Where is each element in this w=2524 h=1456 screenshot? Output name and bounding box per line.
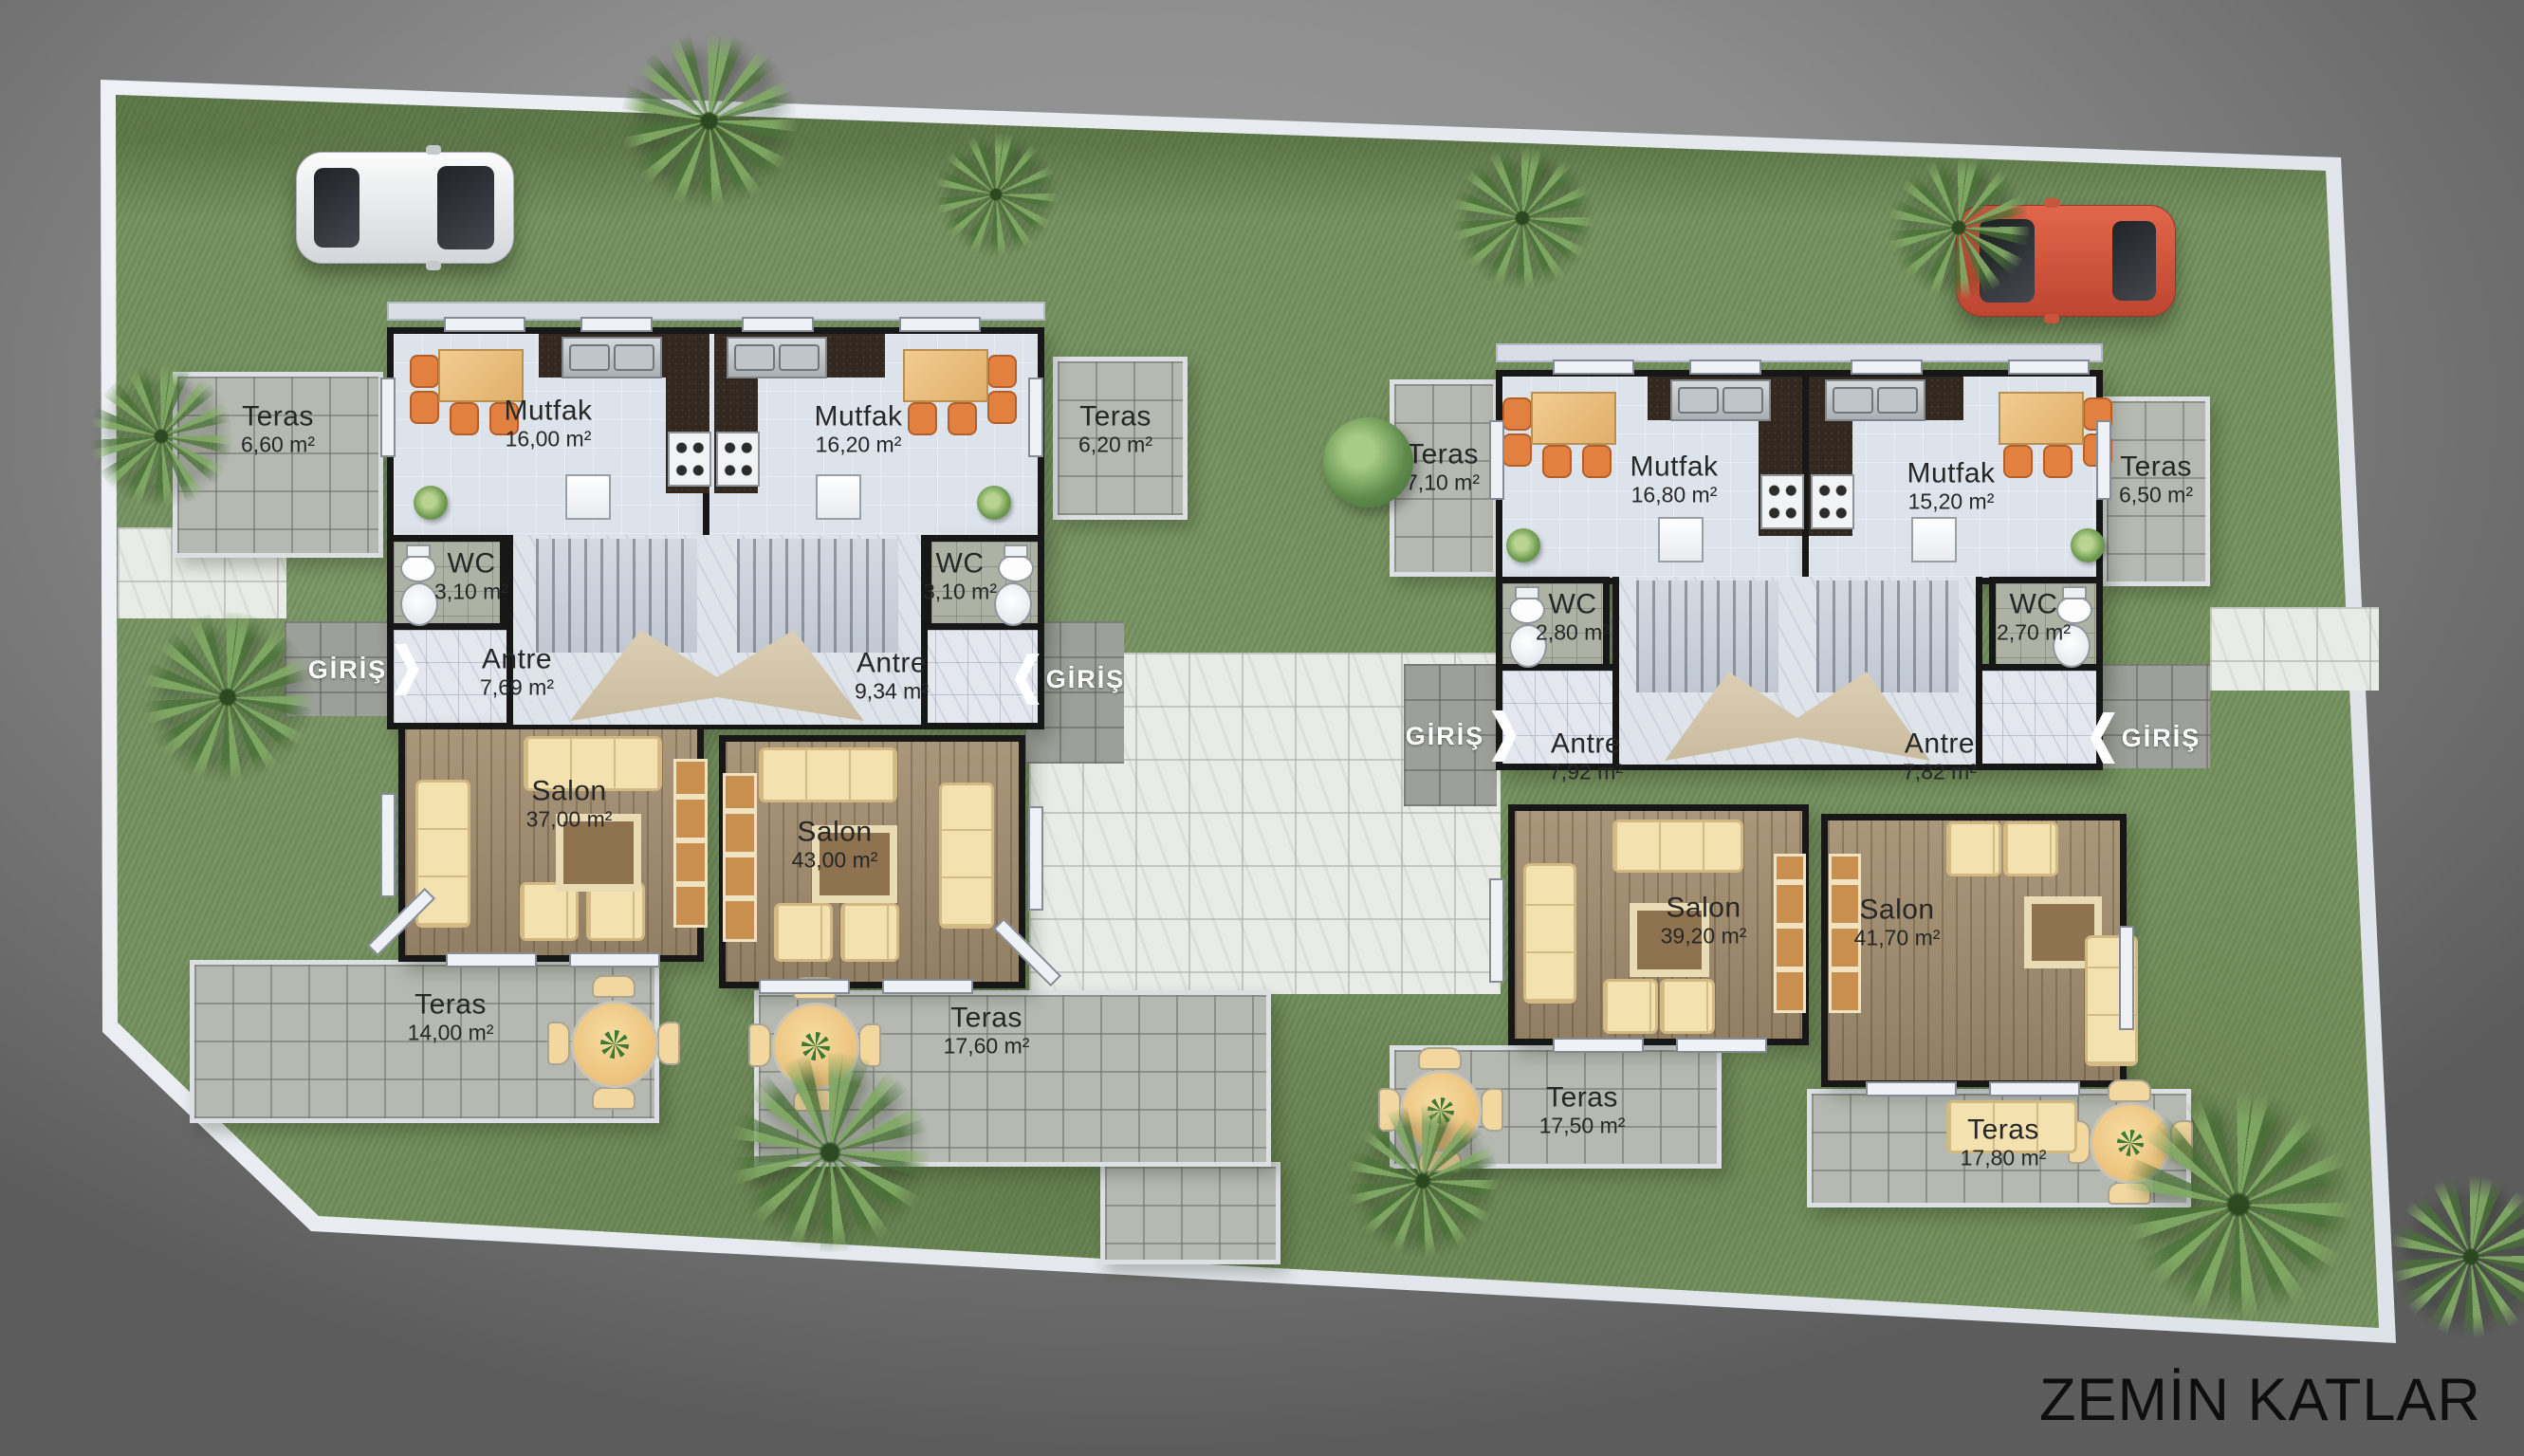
chair <box>410 355 439 388</box>
room-label-teras: Teras 7,10 m² <box>1406 438 1480 494</box>
terrace-chair <box>657 1022 680 1065</box>
stair-flight <box>737 539 898 653</box>
potted-plant <box>977 486 1011 520</box>
car-windshield <box>437 166 494 249</box>
south-walkway <box>1100 1162 1280 1264</box>
window <box>759 979 850 994</box>
palm-tree <box>1888 157 2030 299</box>
car-mirror <box>426 145 441 155</box>
room-label-teras: Teras 14,00 m² <box>408 988 494 1044</box>
window <box>2119 926 2134 1030</box>
room-label-wc: WC 2,80 m² <box>1536 588 1610 644</box>
room-label-mutfak: Mutfak 16,20 m² <box>814 400 902 456</box>
sofa <box>1612 820 1743 873</box>
dining-table <box>903 349 988 402</box>
room-label-salon: Salon 37,00 m² <box>526 775 613 831</box>
car-mirror <box>2044 198 2059 208</box>
room-label-mutfak: Mutfak 16,80 m² <box>1630 451 1718 507</box>
room-label-salon: Salon 43,00 m² <box>792 816 878 872</box>
sofa <box>939 783 994 929</box>
potted-plant <box>1506 528 1540 562</box>
window <box>1553 359 1634 375</box>
sofa <box>759 747 897 802</box>
room-label-salon: Salon 41,70 m² <box>1854 894 1941 949</box>
entrance-marker-unit-b: GİRİŞ <box>1015 654 1126 705</box>
window <box>380 378 396 457</box>
window <box>444 317 525 332</box>
sofa <box>1523 863 1576 1004</box>
tv-cabinet <box>1774 854 1806 1013</box>
fern-plant <box>2390 1176 2524 1337</box>
room-label-teras: Teras 6,20 m² <box>1078 400 1152 456</box>
terrace-chair <box>748 1023 771 1067</box>
window <box>1989 1081 2080 1097</box>
dining-table <box>1999 392 2084 445</box>
terrace-chair <box>547 1022 570 1065</box>
window <box>1851 359 1923 375</box>
fridge <box>1658 517 1704 562</box>
palm-tree <box>621 33 797 209</box>
palm-tree <box>934 133 1058 256</box>
palm-tree <box>2125 1091 2352 1318</box>
wc-sink <box>994 582 1032 626</box>
car-rear-window <box>314 168 359 248</box>
chair <box>987 391 1017 424</box>
entry-path-east <box>2210 607 2379 691</box>
window <box>742 317 814 332</box>
chair <box>410 391 439 424</box>
window <box>1553 1038 1644 1053</box>
car-mirror <box>2044 314 2059 323</box>
fern-plant <box>1347 1105 1499 1257</box>
terrace-table <box>571 1001 658 1088</box>
entrance-label: GİRİŞ <box>308 655 388 685</box>
stair-flight <box>1816 581 1959 692</box>
room-label-antre: Antre 7,82 m² <box>1903 728 1977 783</box>
arrow-left-icon <box>2091 712 2115 764</box>
armchair <box>1660 979 1715 1034</box>
dining-table <box>1531 392 1616 445</box>
window <box>2008 359 2090 375</box>
kitchen-sink <box>1670 379 1771 421</box>
terrace-chair <box>592 975 636 998</box>
palm-tree <box>1451 147 1594 289</box>
armchair <box>840 903 899 962</box>
room-label-mutfak: Mutfak 16,00 m² <box>504 395 592 451</box>
armchair <box>774 903 833 962</box>
window <box>1676 1038 1767 1053</box>
room-label-antre: Antre 7,92 m² <box>1549 728 1623 783</box>
toilet <box>400 554 436 582</box>
arrow-right-icon <box>1491 710 1516 762</box>
tv-cabinet <box>723 773 757 942</box>
stair-flight <box>536 539 697 653</box>
window <box>1866 1081 1957 1097</box>
chair <box>908 402 937 435</box>
room-label-wc: WC 3,10 m² <box>923 547 997 603</box>
stair-flight <box>1636 581 1778 692</box>
stove <box>1811 474 1854 529</box>
terrace-chair <box>2108 1079 2151 1102</box>
chair <box>2003 445 2033 478</box>
kitchen-sink <box>562 337 662 378</box>
chair <box>948 402 977 435</box>
kitchen-sink <box>1825 379 1925 421</box>
wc-sink <box>400 582 438 626</box>
room-label-mutfak: Mutfak 15,20 m² <box>1907 457 1995 513</box>
site-plan-rendering: ZEMİN KATLAR <box>0 0 2524 1456</box>
room-label-salon: Salon 39,20 m² <box>1661 892 1747 948</box>
room-label-antre: Antre 7,69 m² <box>480 643 554 699</box>
window <box>899 317 981 332</box>
toilet <box>998 554 1034 582</box>
kitchen-sink <box>727 337 827 378</box>
stove <box>1760 474 1804 529</box>
window <box>1489 878 1504 983</box>
window <box>1689 359 1761 375</box>
arrow-left-icon <box>1015 654 1040 705</box>
entrance-label: GİRİŞ <box>2122 724 2202 753</box>
room-label-teras: Teras 17,80 m² <box>1961 1114 2047 1170</box>
white-car <box>296 152 514 264</box>
chair <box>1582 445 1612 478</box>
chair <box>1502 433 1532 467</box>
room-label-teras: Teras 6,60 m² <box>241 400 315 456</box>
chair <box>450 402 479 435</box>
fridge <box>816 474 861 520</box>
potted-plant <box>414 486 448 520</box>
fern-plant <box>142 612 313 783</box>
room-label-teras: Teras 17,60 m² <box>944 1002 1030 1058</box>
page-title: ZEMİN KATLAR <box>2039 1366 2481 1434</box>
stove <box>668 432 711 487</box>
terrace-chair <box>592 1087 636 1110</box>
arrow-right-icon <box>394 644 418 695</box>
chair <box>1502 397 1532 431</box>
palm-tree <box>730 1053 930 1252</box>
entrance-label: GİRİŞ <box>1406 722 1485 751</box>
fridge <box>565 474 611 520</box>
room-label-wc: WC 3,10 m² <box>434 547 508 603</box>
window <box>2096 420 2111 500</box>
window <box>569 952 660 968</box>
armchair <box>1946 821 2001 876</box>
room-label-teras: Teras 17,50 m² <box>1539 1081 1626 1137</box>
window <box>580 317 653 332</box>
fridge <box>1911 517 1957 562</box>
bush <box>1323 417 1413 507</box>
chair <box>2043 445 2073 478</box>
window <box>380 793 396 897</box>
armchair <box>1603 979 1658 1034</box>
entrance-marker-unit-d: GİRİŞ <box>2091 712 2202 764</box>
stove <box>716 432 760 487</box>
car-rear-window <box>2112 221 2156 301</box>
room-label-antre: Antre 9,34 m² <box>855 647 929 703</box>
terrace-chair <box>1481 1088 1503 1132</box>
armchair <box>2003 821 2058 876</box>
tv-cabinet <box>673 759 708 928</box>
fern-plant <box>90 365 232 507</box>
room-label-wc: WC 2,70 m² <box>1997 588 2071 644</box>
terrace-chair <box>1418 1047 1462 1070</box>
entrance-label: GİRİŞ <box>1046 665 1126 694</box>
window <box>446 952 537 968</box>
window <box>1028 378 1043 457</box>
chair <box>1542 445 1572 478</box>
chair <box>987 355 1017 388</box>
potted-plant <box>2071 528 2105 562</box>
window <box>882 979 973 994</box>
entrance-marker-unit-a: GİRİŞ <box>308 644 419 695</box>
window <box>1489 420 1504 500</box>
window <box>1028 806 1043 911</box>
entrance-marker-unit-c: GİRİŞ <box>1406 710 1517 762</box>
car-mirror <box>426 261 441 270</box>
room-label-teras: Teras 6,50 m² <box>2119 451 2193 507</box>
